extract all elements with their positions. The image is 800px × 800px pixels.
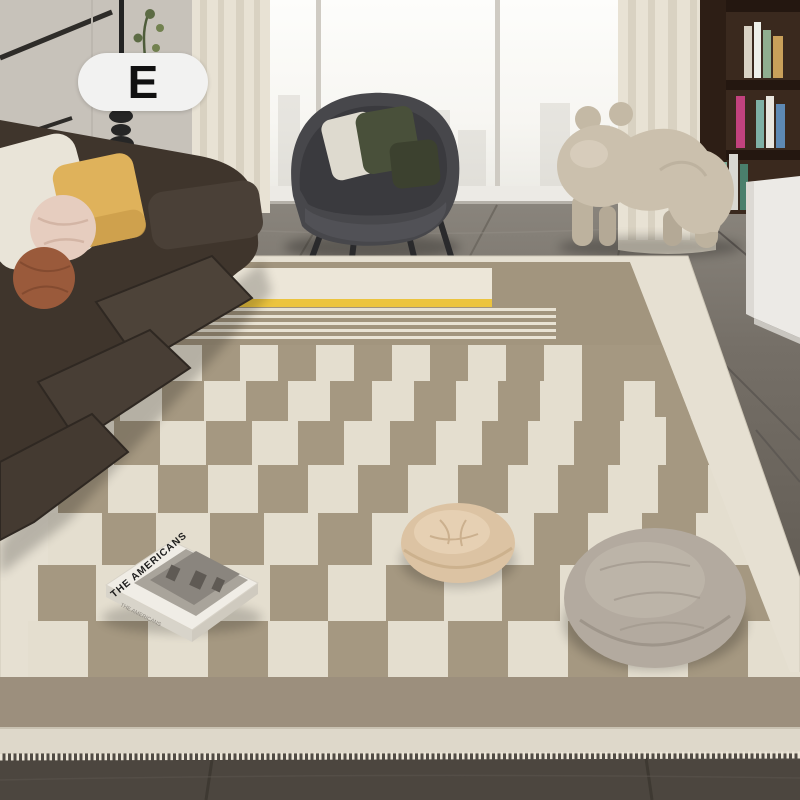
rug-bottom-band [0,677,800,727]
dog-head [557,125,643,207]
product-photo-living-room: THE AMERICANS THE AMERICANS E [0,0,800,800]
variant-label: E [128,59,159,105]
living-room-scene: THE AMERICANS THE AMERICANS [0,0,800,800]
white-cabinet [746,176,800,344]
sofa-pillow-rust-ball [13,247,75,309]
pouf-beige [400,503,516,588]
rug-bottom-border [0,727,800,753]
window-mullion [495,0,500,202]
chair-pillow-olive [389,139,442,190]
pouf-gray [563,528,747,670]
variant-label-badge: E [78,53,208,111]
dog-ear [609,102,633,126]
